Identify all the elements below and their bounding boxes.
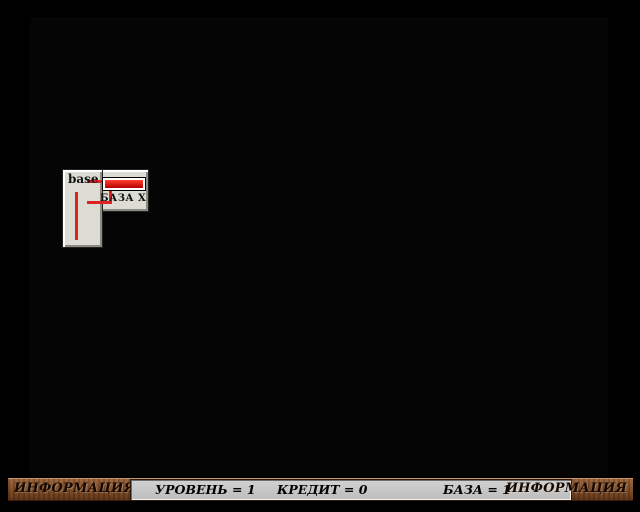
level-value: УРОВЕНЬ = 1 bbox=[155, 482, 256, 497]
info-label-right: ИНФОРМАЦИЯ bbox=[506, 481, 627, 496]
base-title: base bbox=[68, 172, 99, 186]
base-status-panel: base БАЗА X bbox=[63, 170, 148, 247]
base-value: БАЗА = 1 bbox=[443, 482, 511, 497]
wire bbox=[75, 192, 78, 240]
base-label: БАЗА X bbox=[100, 193, 146, 204]
battle-map[interactable] bbox=[30, 17, 608, 477]
game-screen[interactable]: base БАЗА X ИНФОРМАЦИЯ УРОВЕНЬ = 1 КРЕДИ… bbox=[0, 0, 640, 512]
info-label-left: ИНФОРМАЦИЯ bbox=[14, 481, 135, 496]
credit-value: КРЕДИТ = 0 bbox=[277, 482, 367, 497]
status-bar: ИНФОРМАЦИЯ УРОВЕНЬ = 1 КРЕДИТ = 0 БАЗА =… bbox=[8, 478, 633, 501]
base-health-bar bbox=[102, 177, 146, 191]
